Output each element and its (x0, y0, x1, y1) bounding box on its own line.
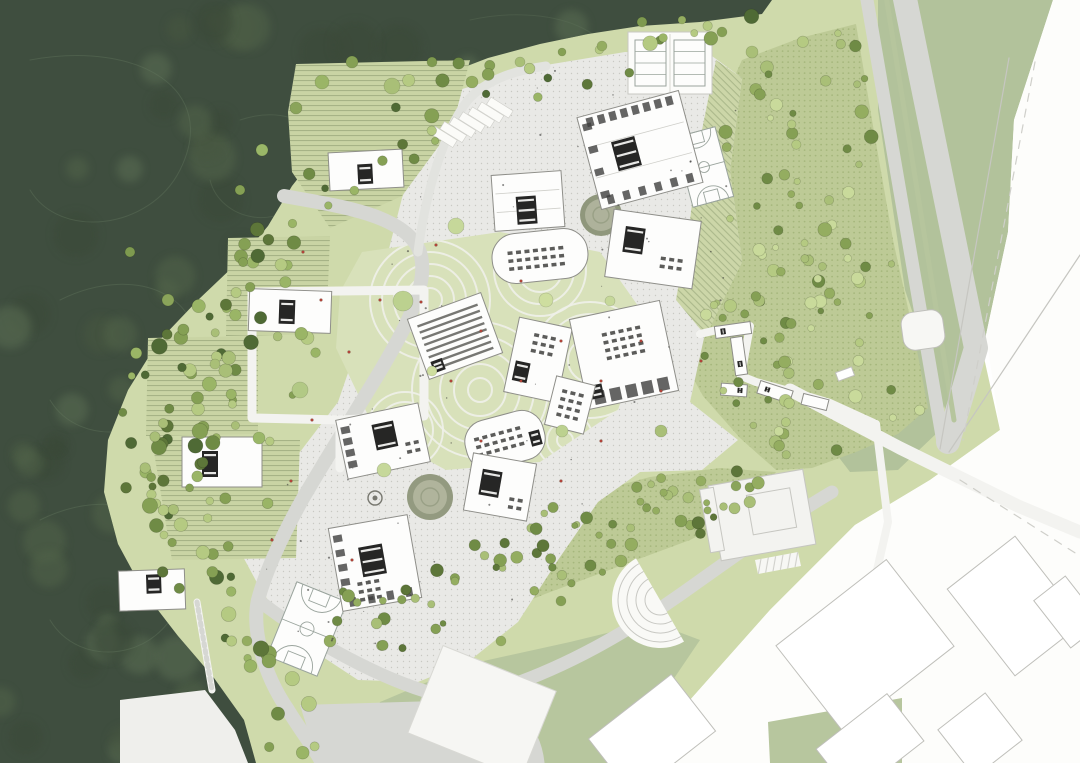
building-nw-dorm (328, 149, 404, 191)
building-w-dorm-1 (248, 289, 331, 334)
turning-pad (900, 308, 947, 351)
volleyball-courts (628, 32, 712, 94)
site-plan (0, 0, 1080, 763)
plaza-circle-south (407, 474, 453, 520)
building-s-school (463, 453, 536, 521)
building-e-school (605, 209, 702, 289)
masterplan-canvas (0, 0, 1080, 763)
building-n-school (491, 171, 565, 232)
